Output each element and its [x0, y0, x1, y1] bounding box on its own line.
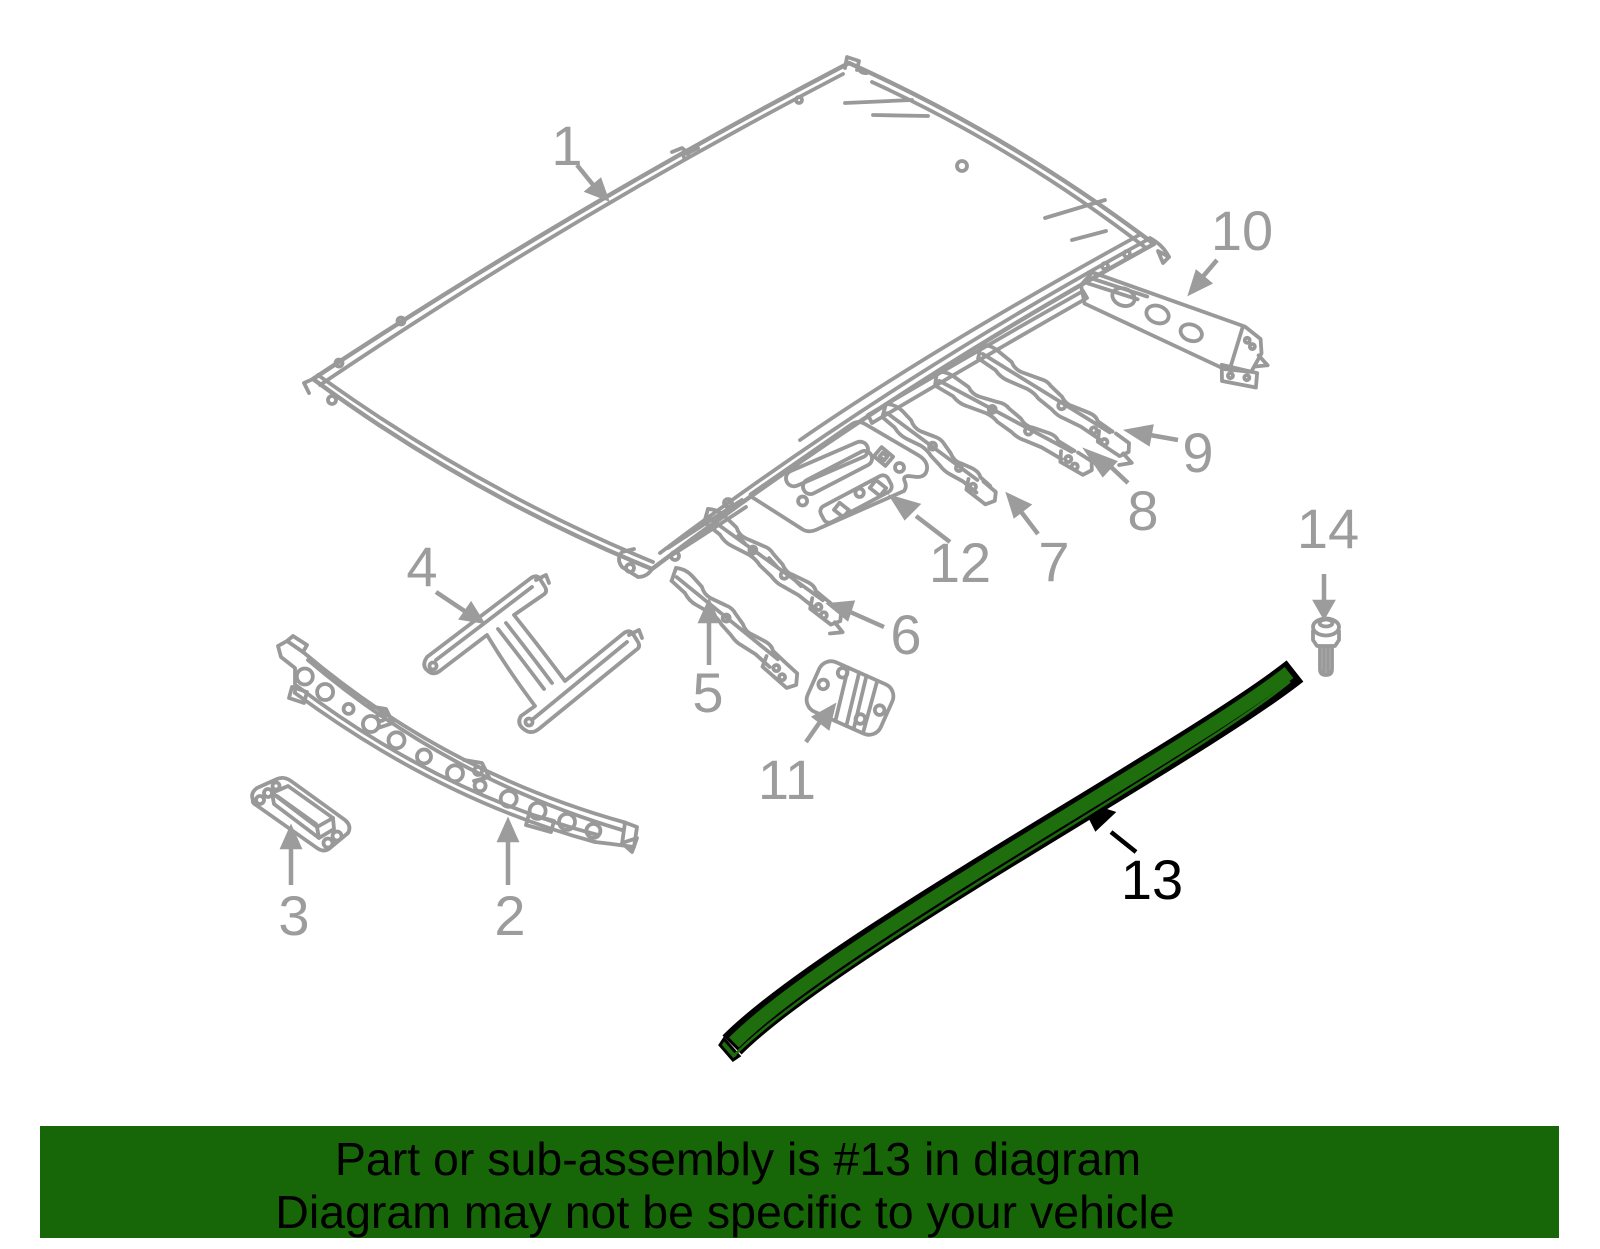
svg-text:6: 6 — [890, 603, 921, 666]
svg-text:4: 4 — [406, 535, 437, 598]
svg-text:13: 13 — [1121, 848, 1183, 911]
svg-text:2: 2 — [494, 884, 525, 947]
svg-text:7: 7 — [1038, 530, 1069, 593]
svg-text:12: 12 — [929, 531, 991, 594]
svg-text:5: 5 — [692, 661, 723, 724]
svg-text:3: 3 — [278, 884, 309, 947]
svg-text:14: 14 — [1297, 497, 1359, 560]
svg-text:10: 10 — [1211, 199, 1273, 262]
svg-text:11: 11 — [758, 748, 816, 811]
svg-text:Diagram may not be specific to: Diagram may not be specific to your vehi… — [275, 1186, 1174, 1238]
svg-text:8: 8 — [1127, 479, 1158, 542]
svg-text:9: 9 — [1182, 421, 1213, 484]
svg-text:Part or sub-assembly is #13 in: Part or sub-assembly is #13 in diagram — [335, 1133, 1141, 1185]
